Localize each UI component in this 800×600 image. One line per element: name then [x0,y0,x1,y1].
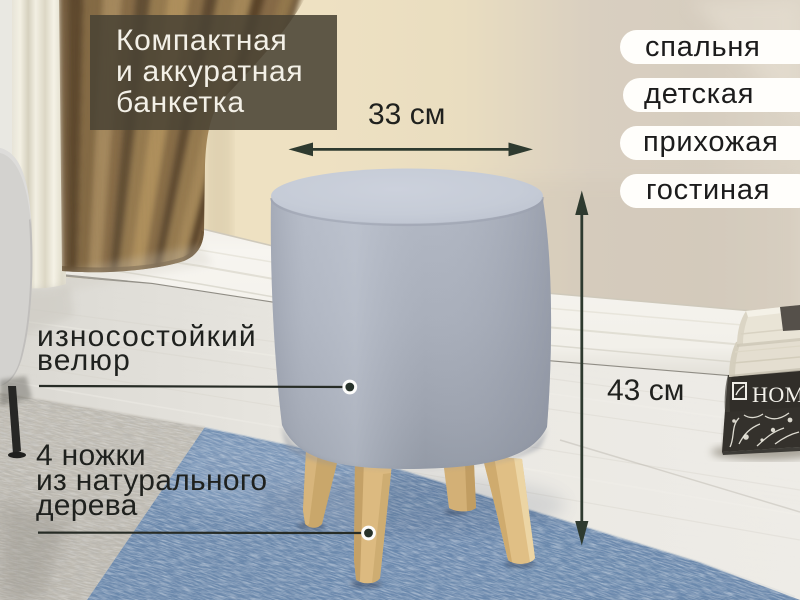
svg-text:HOME: HOME [752,382,800,407]
